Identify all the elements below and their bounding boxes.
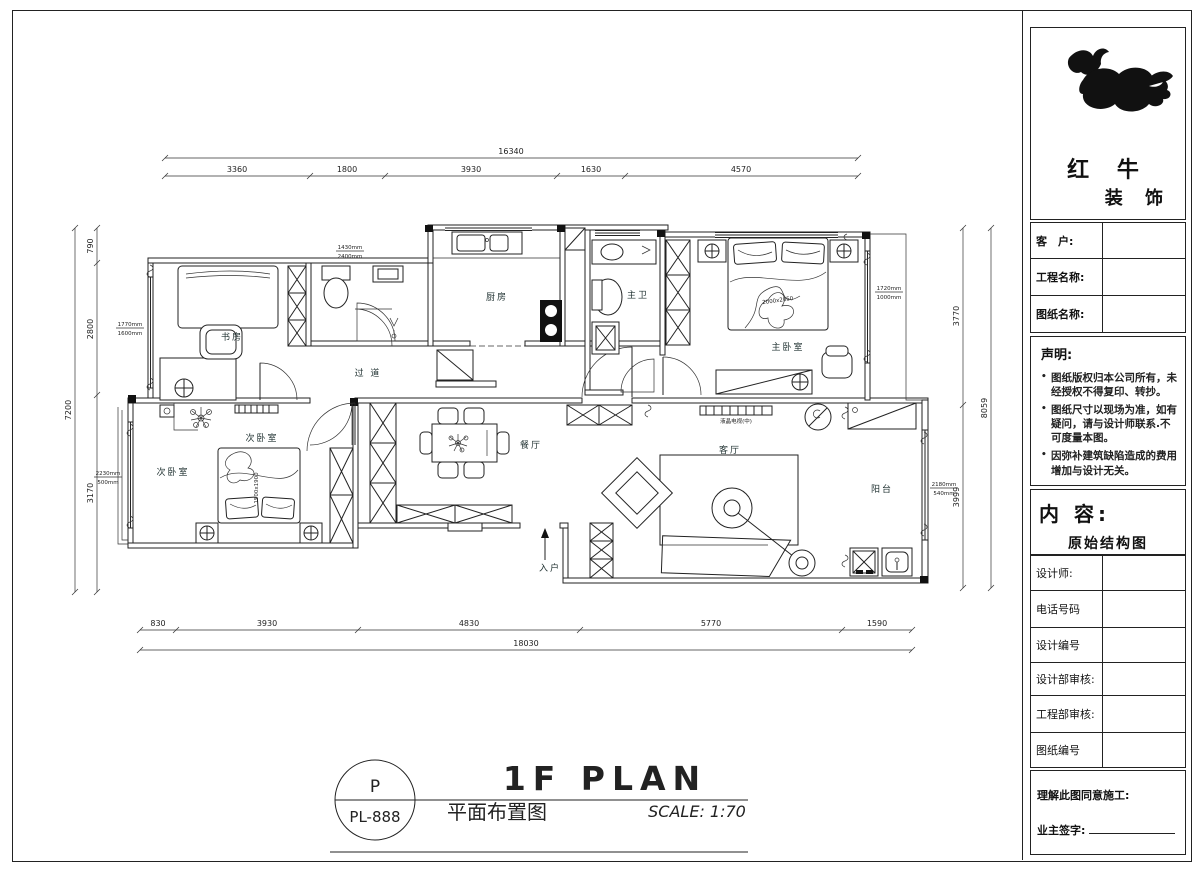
svg-text:2180mm: 2180mm (932, 482, 957, 488)
dim-bottom-seg1: 830 (150, 619, 165, 628)
designer-value-cell (1102, 556, 1185, 590)
designer-label: 设计师: (1031, 556, 1102, 590)
engineering-audit-row: 工程部审核: (1030, 695, 1186, 733)
hall-closet (370, 403, 396, 523)
room-label-bed2b: 次卧室 (156, 466, 189, 478)
design-audit-row: 设计部审核: (1030, 662, 1186, 696)
dim-left-seg2: 2800 (86, 319, 95, 339)
window-tag-kitchen-top: 1430mm 2400mm (336, 245, 364, 260)
title-bar: P PL-888 1F PLAN 平面布置图 SCALE: 1:70 (330, 759, 748, 852)
dim-bottom: 830 3930 4830 5770 1590 18030 (137, 619, 915, 653)
dim-right-total: 8059 (980, 398, 989, 418)
room-label-master-bed: 主卧室 (771, 341, 804, 353)
construction-consent-text: 理解此图同意施工: (1031, 787, 1185, 803)
project-label: 工程名称: (1031, 259, 1102, 295)
company-name: 红 牛 (1031, 152, 1185, 184)
dim-bottom-seg2: 3930 (257, 619, 277, 628)
signature-box: 理解此图同意施工: 业主签字: (1030, 770, 1186, 855)
room-label-bed2a: 次卧室 (245, 432, 278, 444)
statement-item: 因弥补建筑缺陷造成的费用增加与设计无关。 (1041, 449, 1179, 477)
content-value: 原始结构图 (1031, 533, 1185, 553)
svg-text:1600mm: 1600mm (118, 331, 143, 337)
design-no-value-cell (1102, 628, 1185, 662)
room-label-living: 客厅 (719, 444, 741, 456)
design-audit-label: 设计部审核: (1031, 663, 1102, 695)
svg-text:2230mm: 2230mm (96, 471, 121, 477)
dim-left-seg3: 3170 (86, 483, 95, 503)
statement-box: 声明: 图纸版权归本公司所有，未经授权不得复印、转抄。 图纸尺寸以现场为准，如有… (1030, 336, 1186, 486)
dim-right-seg1: 3770 (952, 306, 961, 326)
floor-plan: 16340 3360 1800 3930 1630 4570 830 3930 … (0, 0, 1030, 871)
dim-top-seg1: 3360 (227, 165, 247, 174)
statement-item: 图纸版权归本公司所有，未经授权不得复印、转抄。 (1041, 371, 1179, 399)
design-audit-value-cell (1102, 663, 1185, 695)
dim-top: 16340 3360 1800 3930 1630 4570 (162, 147, 861, 179)
dim-top-seg3: 3930 (461, 165, 481, 174)
window-tag-study-left: 1770mm 1600mm (116, 322, 144, 337)
company-subname: 装 饰 (1031, 184, 1185, 210)
plan-scale: SCALE: 1:70 (648, 802, 746, 821)
entry-arrow (541, 528, 549, 560)
engineering-audit-label: 工程部审核: (1031, 696, 1102, 732)
dim-left: 7200 790 2800 3170 (64, 225, 100, 595)
room-label-balcony: 阳台 (871, 483, 893, 495)
second-bed-size-label: 1500x1900 (254, 472, 260, 504)
drawing-no-row: 图纸编号 (1030, 732, 1186, 768)
dim-right-seg2: 3999 (952, 487, 961, 507)
design-no-row: 设计编号 (1030, 627, 1186, 663)
drawing-no-value-cell (1102, 733, 1185, 767)
company-logo (1031, 28, 1185, 148)
drawing-sheet: 16340 3360 1800 3930 1630 4570 830 3930 … (0, 0, 1200, 871)
dim-left-seg1: 790 (86, 238, 95, 253)
bath1-fixtures (322, 266, 403, 338)
drawing-no-label: 图纸编号 (1031, 733, 1102, 767)
design-no-label: 设计编号 (1031, 628, 1102, 662)
svg-text:1720mm: 1720mm (877, 286, 902, 292)
dim-top-seg2: 1800 (337, 165, 357, 174)
project-value-cell (1102, 259, 1185, 295)
room-label-corridor: 过 道 (355, 367, 382, 379)
bed2-wardrobe (330, 448, 353, 543)
client-row: 客 户: (1030, 222, 1186, 259)
room-label-study: 书房 (221, 331, 243, 343)
room-label-master-bath: 主卫 (627, 289, 649, 301)
plant (191, 407, 212, 428)
dining-furniture (420, 408, 509, 478)
study-shaft (288, 266, 306, 346)
fan-symbol (805, 404, 831, 430)
dim-top-seg5: 4570 (731, 165, 751, 174)
svg-text:540mm: 540mm (933, 491, 954, 497)
content-box: 内 容: 原始结构图 (1030, 489, 1186, 555)
dim-right: 3770 3999 8059 (952, 225, 994, 591)
dim-top-total: 16340 (498, 147, 523, 156)
signature-line (1089, 821, 1175, 834)
master-wardrobe (666, 240, 690, 345)
living-top-cabinet (567, 405, 632, 425)
dim-left-total: 7200 (64, 400, 73, 420)
stamp-letter: P (370, 777, 380, 797)
dim-bottom-seg4: 5770 (701, 619, 721, 628)
tv-label: 液晶电视(中) (720, 417, 752, 425)
shoe-cabinet (590, 523, 613, 578)
svg-text:1000mm: 1000mm (877, 295, 902, 301)
kitchen-fixtures (433, 232, 562, 387)
svg-text:1770mm: 1770mm (118, 322, 143, 328)
client-label: 客 户: (1031, 223, 1102, 258)
owner-signature-label: 业主签字: (1031, 821, 1185, 838)
dim-bottom-seg5: 1590 (867, 619, 887, 628)
living-furniture: 液晶电视(中) (602, 404, 831, 577)
room-label-kitchen: 厨房 (486, 291, 508, 303)
dim-bottom-seg3: 4830 (459, 619, 479, 628)
statement-title: 声明: (1041, 347, 1179, 365)
room-label-dining: 餐厅 (520, 439, 542, 451)
logo-box: 红 牛 装 饰 (1030, 27, 1186, 220)
project-row: 工程名称: (1030, 258, 1186, 296)
engineering-audit-value-cell (1102, 696, 1185, 732)
stamp-number: PL-888 (349, 808, 400, 826)
phone-value-cell (1102, 591, 1185, 627)
drawing-name-row: 图纸名称: (1030, 295, 1186, 333)
plan-title-en: 1F PLAN (503, 759, 707, 798)
phone-label: 电话号码 (1031, 591, 1102, 627)
owner-signature-text: 业主签字: (1037, 824, 1085, 837)
master-bedroom-furniture: 2000x2050 (698, 238, 858, 394)
plan-title-cn: 平面布置图 (447, 800, 547, 824)
svg-text:2400mm: 2400mm (338, 254, 363, 260)
designer-row: 设计师: (1030, 555, 1186, 591)
dim-bottom-total: 18030 (513, 639, 538, 648)
svg-text:1430mm: 1430mm (338, 245, 363, 251)
phone-row: 电话号码 (1030, 590, 1186, 628)
client-value-cell (1102, 223, 1185, 258)
window-tag-master-right: 1720mm 1000mm (875, 286, 903, 301)
dim-top-seg4: 1630 (581, 165, 601, 174)
drawing-name-value-cell (1102, 296, 1185, 332)
drawing-name-label: 图纸名称: (1031, 296, 1102, 332)
statement-item: 图纸尺寸以现场为准，如有疑问，请与设计师联系.不可度量本图。 (1041, 403, 1179, 446)
svg-text:500mm: 500mm (97, 480, 118, 486)
content-label: 内 容: (1031, 490, 1185, 527)
room-label-entry: 入户 (539, 562, 561, 574)
